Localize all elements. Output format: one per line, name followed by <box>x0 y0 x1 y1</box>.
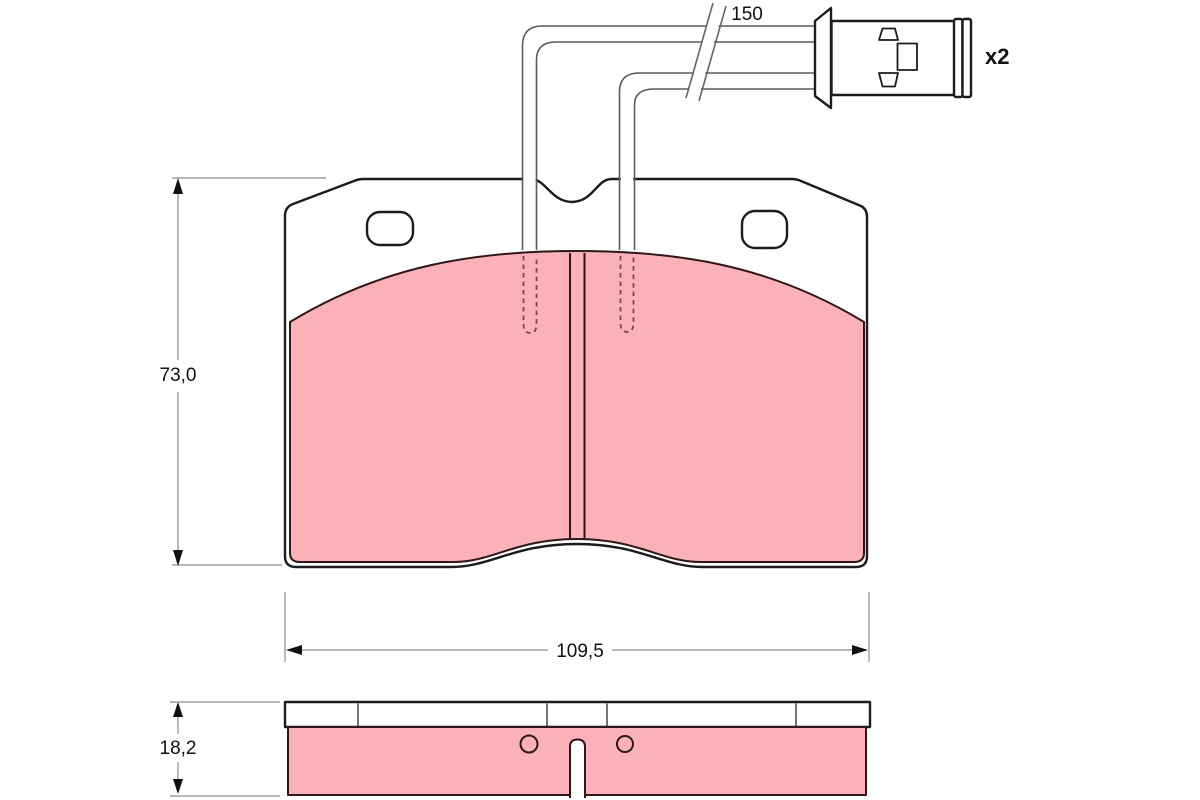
connector-ring-2 <box>963 19 972 97</box>
left-lug-hole <box>367 212 413 245</box>
brake-pad-diagram: x2 150 73,0 109,5 <box>0 0 1200 800</box>
wear-sensor-connector <box>815 8 971 108</box>
dimension-width: 109,5 <box>285 592 869 662</box>
front-view <box>285 3 867 567</box>
bottom-view <box>285 702 870 798</box>
connector-pin-bottom <box>879 73 898 87</box>
connector-pin-top <box>879 29 898 41</box>
dim-height-label: 73,0 <box>160 365 197 386</box>
bottom-slot <box>570 740 585 799</box>
quantity-label: x2 <box>985 44 1009 69</box>
right-lug-hole <box>742 211 787 248</box>
dim-wire-length-label: 150 <box>731 4 763 25</box>
brake-pad-diagram-page: x2 150 73,0 109,5 <box>0 0 1200 800</box>
dim-thickness-label: 18,2 <box>160 738 197 759</box>
connector-latch <box>898 44 918 71</box>
dimension-thickness: 18,2 <box>160 702 280 796</box>
dim-width-label: 109,5 <box>556 641 604 662</box>
friction-material <box>290 251 864 562</box>
connector-flange <box>815 8 831 108</box>
backplate-edge-strip <box>285 702 870 727</box>
connector-ring-1 <box>954 19 963 97</box>
